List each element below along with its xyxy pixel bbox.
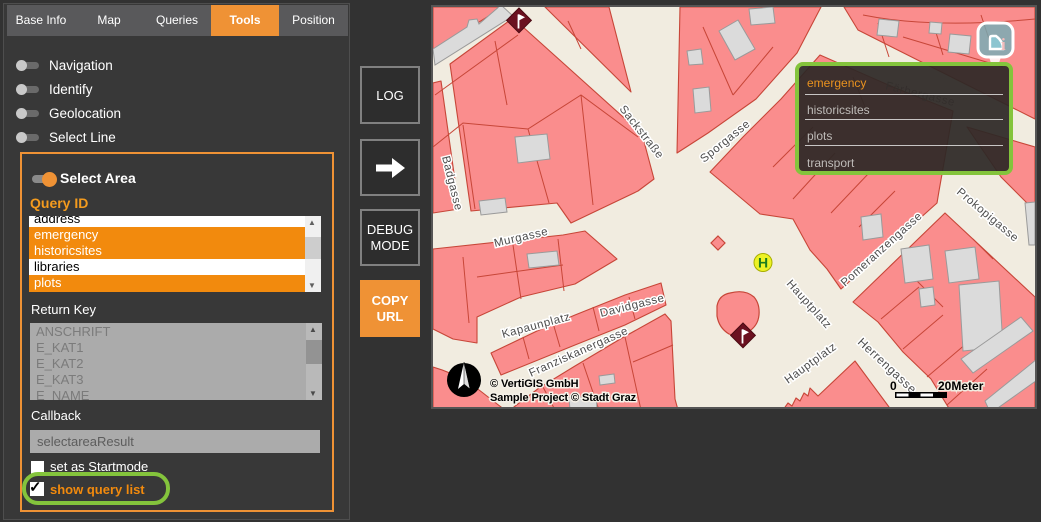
svg-text:© VertiGIS GmbH: © VertiGIS GmbH <box>490 378 579 390</box>
svg-text:H: H <box>758 255 768 271</box>
svg-text:Sample Project © Stadt Graz: Sample Project © Stadt Graz <box>490 392 637 404</box>
svg-text:i: i <box>1001 35 1006 54</box>
svg-text:0: 0 <box>890 379 897 393</box>
svg-text:20Meter: 20Meter <box>938 379 984 393</box>
